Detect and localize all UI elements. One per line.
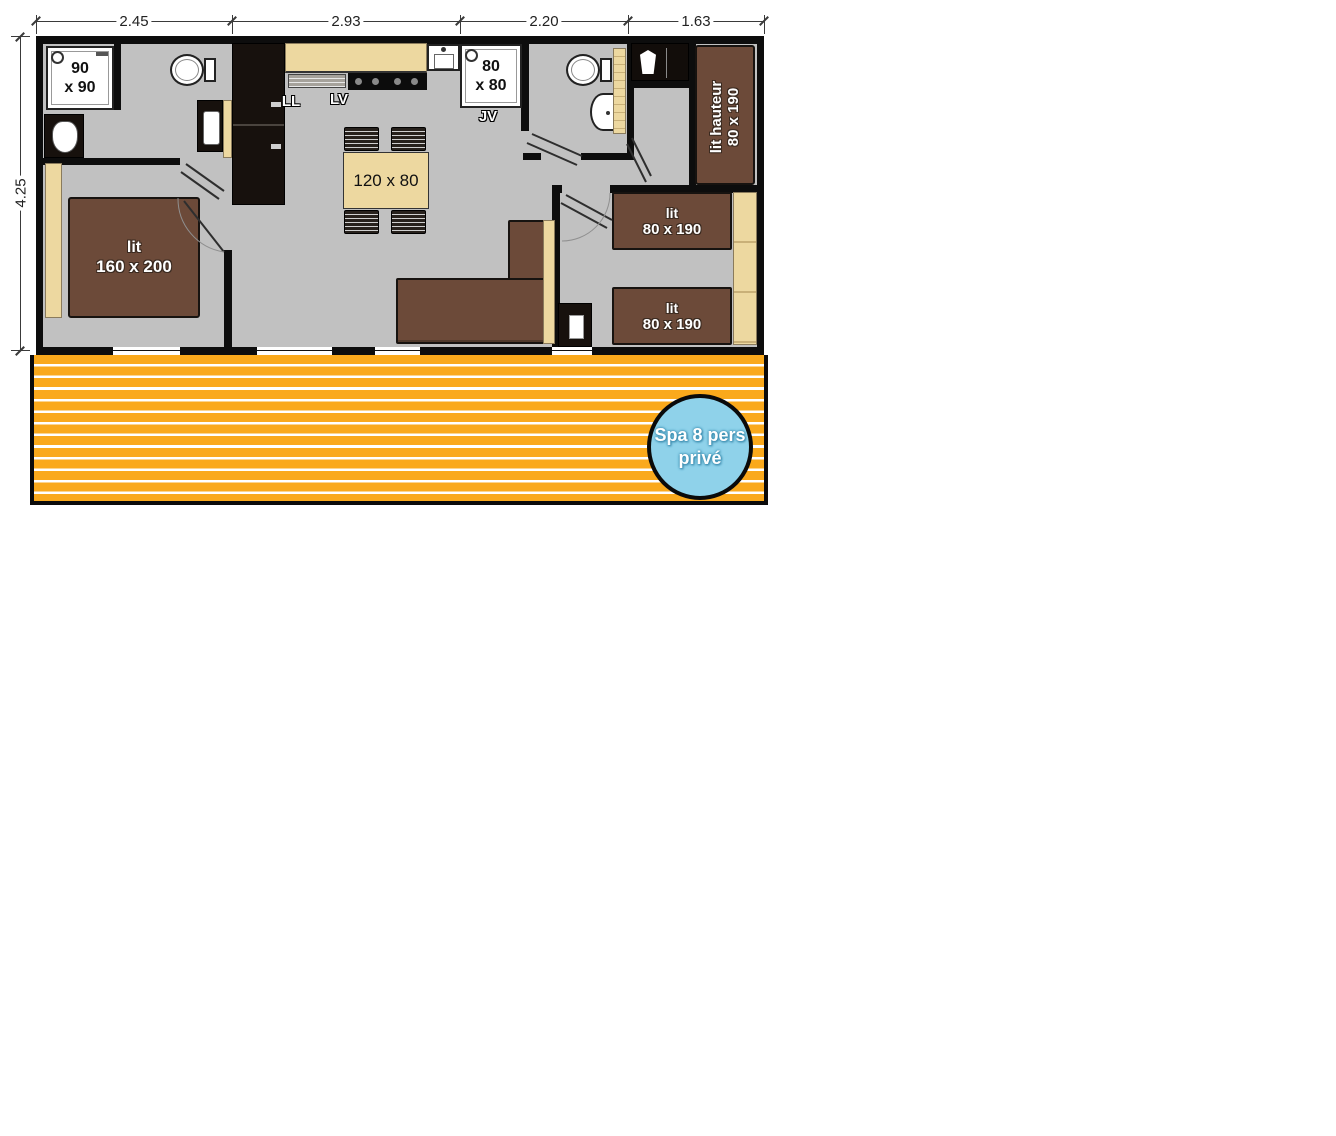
terrace-deck: Spa 8 pers privé — [30, 355, 768, 505]
spa-circle: Spa 8 pers privé — [647, 394, 753, 500]
floorplan-canvas: 2.45 2.93 2.20 1.63 4.25 — [0, 0, 1336, 1136]
house-plan: 90 x 90 lit 160 x 200 — [36, 36, 764, 355]
dim-label-width-3: 2.20 — [526, 13, 561, 30]
dim-label-height: 4.25 — [13, 175, 30, 210]
dim-label-width-1: 2.45 — [116, 13, 151, 30]
door-swing-overlay — [36, 36, 764, 355]
dim-label-width-4: 1.63 — [678, 13, 713, 30]
dim-label-width-2: 2.93 — [328, 13, 363, 30]
spa-label-line2: privé — [678, 447, 721, 470]
spa-label-line1: Spa 8 pers — [654, 424, 745, 447]
